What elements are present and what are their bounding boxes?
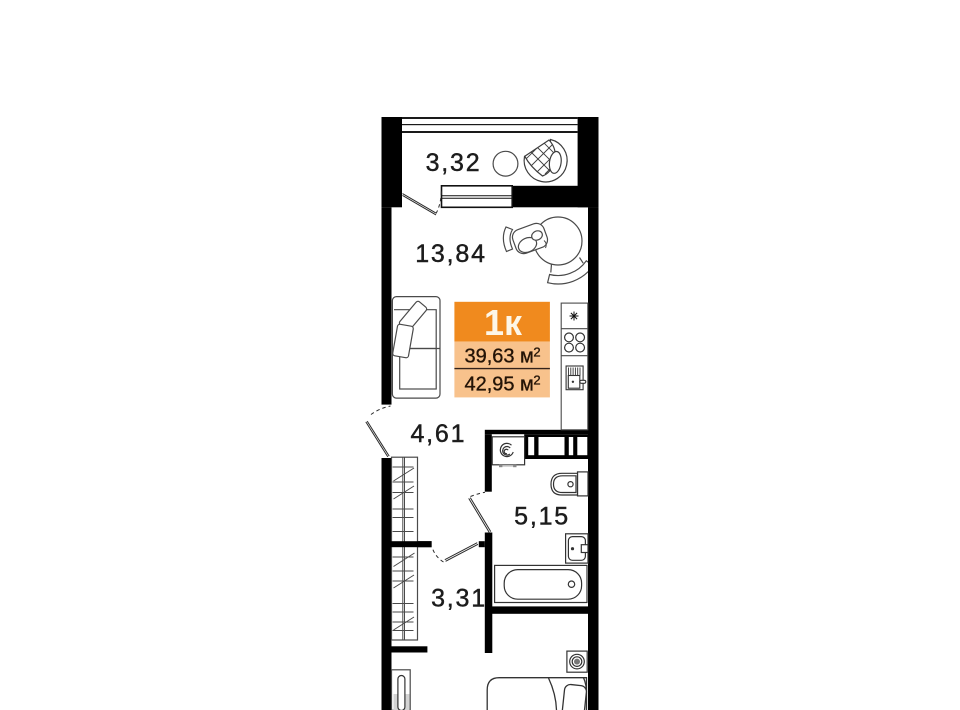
svg-text:39,63 м2: 39,63 м2 <box>464 345 540 368</box>
svg-text:13,84: 13,84 <box>415 240 487 268</box>
svg-text:3,31: 3,31 <box>431 584 487 612</box>
svg-text:5,15: 5,15 <box>514 503 570 531</box>
svg-text:3,32: 3,32 <box>426 149 482 177</box>
svg-text:1к: 1к <box>484 302 523 343</box>
svg-text:4,61: 4,61 <box>410 420 466 448</box>
svg-text:42,95 м2: 42,95 м2 <box>464 373 540 396</box>
